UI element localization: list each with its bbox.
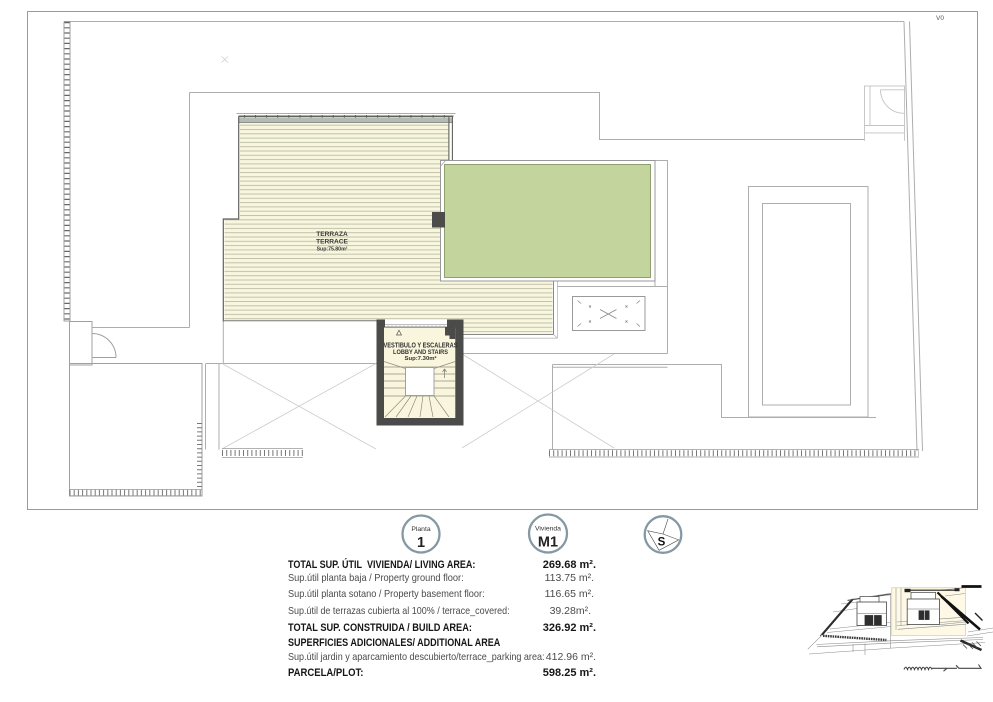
svg-text:Sup:75.80m²: Sup:75.80m² — [317, 247, 348, 253]
svg-text:TERRAZA: TERRAZA — [316, 231, 348, 238]
svg-text:TERRACE: TERRACE — [316, 239, 348, 246]
svg-text:1: 1 — [417, 535, 425, 551]
svg-text:M1: M1 — [538, 535, 558, 551]
svg-text:Planta: Planta — [411, 526, 430, 533]
svg-text:Sup:7.30m²: Sup:7.30m² — [405, 355, 437, 362]
svg-text:S: S — [658, 537, 666, 549]
svg-text:V0: V0 — [936, 15, 944, 22]
svg-text:Vivienda: Vivienda — [535, 526, 561, 533]
